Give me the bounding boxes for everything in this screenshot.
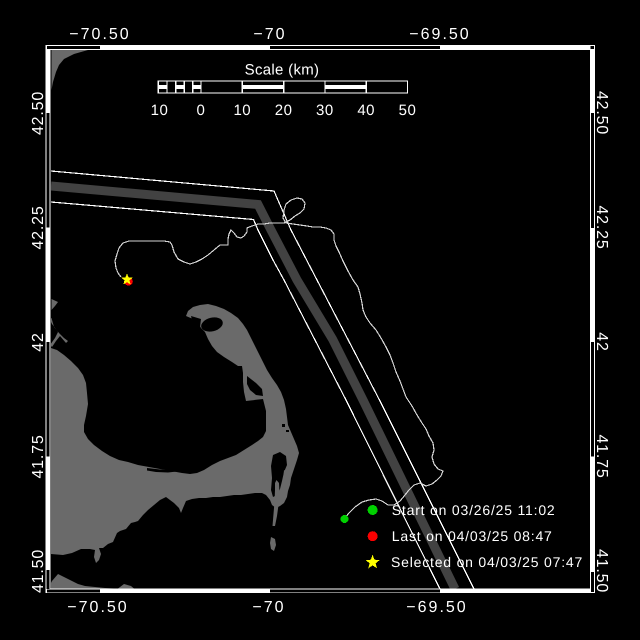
svg-text:Scale (km): Scale (km) (245, 62, 320, 79)
svg-text:41.75: 41.75 (30, 434, 47, 478)
svg-text:41.75: 41.75 (593, 434, 610, 478)
svg-text:−69.50: −69.50 (406, 599, 467, 616)
svg-text:−70.50: −70.50 (67, 599, 128, 616)
svg-text:42: 42 (30, 332, 47, 351)
svg-text:40: 40 (357, 102, 375, 119)
svg-text:Last on 04/03/25 08:47: Last on 04/03/25 08:47 (392, 528, 553, 544)
svg-text:42.50: 42.50 (30, 91, 47, 135)
svg-text:10: 10 (233, 102, 251, 119)
svg-text:30: 30 (316, 102, 334, 119)
svg-text:42.50: 42.50 (593, 91, 610, 135)
svg-text:42: 42 (593, 332, 610, 351)
svg-text:−70: −70 (253, 26, 286, 43)
svg-text:Selected on 04/03/25 07:47: Selected on 04/03/25 07:47 (391, 554, 583, 570)
svg-text:−70: −70 (252, 599, 285, 616)
svg-text:20: 20 (275, 102, 293, 119)
svg-text:Start on 03/26/25 11:02: Start on 03/26/25 11:02 (392, 502, 556, 518)
svg-text:0: 0 (196, 102, 205, 119)
svg-text:50: 50 (399, 102, 417, 119)
svg-text:41.50: 41.50 (30, 549, 47, 593)
svg-text:10: 10 (151, 102, 169, 119)
svg-text:41.50: 41.50 (593, 549, 610, 593)
svg-text:42.25: 42.25 (593, 205, 610, 249)
svg-text:−69.50: −69.50 (409, 26, 470, 43)
svg-text:−70.50: −70.50 (69, 26, 130, 43)
svg-text:42.25: 42.25 (30, 205, 47, 249)
